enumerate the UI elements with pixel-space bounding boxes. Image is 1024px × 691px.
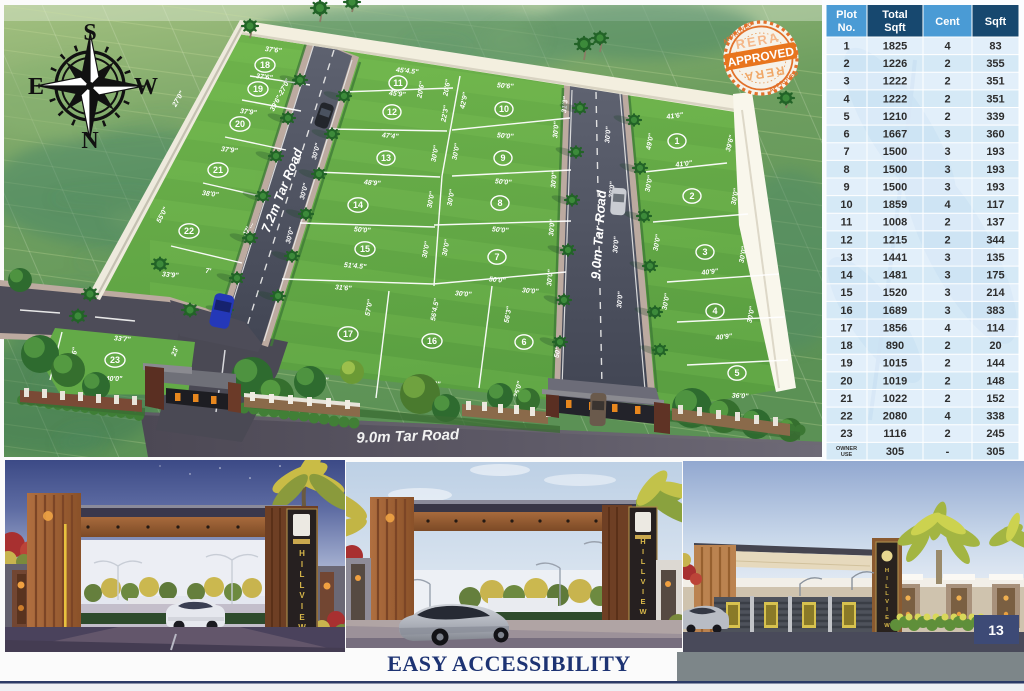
svg-text:I: I bbox=[301, 560, 303, 569]
svg-text:11: 11 bbox=[841, 217, 853, 229]
svg-text:1667: 1667 bbox=[883, 129, 907, 141]
svg-text:Sqft: Sqft bbox=[985, 16, 1007, 28]
svg-text:18: 18 bbox=[260, 60, 270, 70]
svg-text:1210: 1210 bbox=[883, 111, 907, 123]
svg-text:1015: 1015 bbox=[883, 358, 907, 370]
svg-text:H: H bbox=[885, 568, 889, 574]
svg-text:19: 19 bbox=[253, 84, 263, 94]
svg-text:1008: 1008 bbox=[883, 217, 907, 229]
svg-text:1441: 1441 bbox=[883, 252, 907, 264]
svg-text:245: 245 bbox=[986, 428, 1004, 440]
svg-text:305: 305 bbox=[986, 446, 1004, 458]
svg-text:7: 7 bbox=[494, 252, 499, 262]
svg-text:14: 14 bbox=[840, 270, 853, 282]
svg-text:4: 4 bbox=[944, 322, 951, 334]
svg-text:4: 4 bbox=[944, 199, 951, 211]
svg-text:Total: Total bbox=[882, 9, 907, 21]
svg-text:7': 7' bbox=[205, 268, 211, 275]
svg-text:1856: 1856 bbox=[883, 322, 907, 334]
svg-text:12: 12 bbox=[840, 234, 852, 246]
svg-text:N: N bbox=[81, 128, 99, 154]
svg-text:1226: 1226 bbox=[883, 58, 907, 70]
svg-text:1689: 1689 bbox=[883, 305, 907, 317]
svg-text:144: 144 bbox=[986, 358, 1005, 370]
svg-text:2: 2 bbox=[843, 58, 849, 70]
svg-text:305: 305 bbox=[886, 446, 904, 458]
svg-text:351: 351 bbox=[986, 76, 1004, 88]
svg-text:13: 13 bbox=[840, 252, 852, 264]
svg-text:1500: 1500 bbox=[883, 146, 907, 158]
svg-text:15: 15 bbox=[360, 244, 370, 254]
svg-text:L: L bbox=[885, 584, 889, 590]
svg-text:3: 3 bbox=[944, 146, 950, 158]
svg-text:22: 22 bbox=[840, 411, 852, 423]
svg-text:360: 360 bbox=[986, 129, 1004, 141]
svg-text:1222: 1222 bbox=[883, 76, 907, 88]
svg-text:351: 351 bbox=[986, 93, 1004, 105]
svg-text:21: 21 bbox=[840, 393, 852, 405]
svg-text:1022: 1022 bbox=[883, 393, 907, 405]
svg-text:I: I bbox=[642, 587, 644, 596]
svg-text:2: 2 bbox=[944, 340, 950, 352]
svg-text:W: W bbox=[134, 74, 158, 100]
svg-text:383: 383 bbox=[986, 305, 1004, 317]
svg-text:2: 2 bbox=[944, 58, 950, 70]
svg-text:7: 7 bbox=[843, 146, 849, 158]
svg-text:3: 3 bbox=[944, 164, 950, 176]
svg-text:6: 6 bbox=[521, 337, 526, 347]
svg-text:1520: 1520 bbox=[883, 287, 907, 299]
svg-text:EASY ACCESSIBILITY: EASY ACCESSIBILITY bbox=[387, 651, 631, 676]
svg-text:3: 3 bbox=[944, 305, 950, 317]
svg-text:8: 8 bbox=[843, 164, 849, 176]
svg-text:193: 193 bbox=[986, 164, 1004, 176]
svg-text:4: 4 bbox=[944, 40, 951, 52]
svg-text:23: 23 bbox=[110, 355, 120, 365]
svg-text:5: 5 bbox=[734, 368, 739, 378]
svg-text:36'0": 36'0" bbox=[732, 393, 750, 401]
svg-text:2: 2 bbox=[944, 217, 950, 229]
svg-text:3: 3 bbox=[944, 270, 950, 282]
svg-text:3: 3 bbox=[843, 76, 849, 88]
svg-text:USE: USE bbox=[841, 452, 853, 458]
svg-text:13: 13 bbox=[988, 622, 1004, 638]
svg-text:3: 3 bbox=[944, 287, 950, 299]
svg-text:10: 10 bbox=[499, 104, 509, 114]
svg-text:22: 22 bbox=[184, 226, 194, 236]
svg-text:2: 2 bbox=[944, 393, 950, 405]
svg-text:I: I bbox=[301, 602, 303, 611]
svg-text:14: 14 bbox=[353, 200, 363, 210]
svg-text:L: L bbox=[300, 570, 305, 579]
svg-text:338: 338 bbox=[986, 411, 1004, 423]
svg-text:23: 23 bbox=[840, 428, 852, 440]
svg-text:9: 9 bbox=[843, 181, 849, 193]
svg-text:152: 152 bbox=[986, 393, 1004, 405]
svg-text:17: 17 bbox=[343, 329, 353, 339]
svg-text:1222: 1222 bbox=[883, 93, 907, 105]
svg-text:2: 2 bbox=[944, 375, 950, 387]
svg-text:1859: 1859 bbox=[883, 199, 907, 211]
svg-text:4: 4 bbox=[843, 93, 850, 105]
svg-text:214: 214 bbox=[986, 287, 1005, 299]
svg-text:20: 20 bbox=[989, 340, 1001, 352]
svg-text:2: 2 bbox=[689, 191, 694, 201]
svg-text:890: 890 bbox=[886, 340, 904, 352]
svg-text:175: 175 bbox=[986, 270, 1004, 282]
svg-text:16: 16 bbox=[840, 305, 852, 317]
svg-text:2: 2 bbox=[944, 76, 950, 88]
svg-text:H: H bbox=[640, 537, 645, 546]
svg-text:193: 193 bbox=[986, 146, 1004, 158]
svg-text:4: 4 bbox=[712, 306, 717, 316]
svg-text:Sqft: Sqft bbox=[884, 22, 906, 34]
svg-text:20: 20 bbox=[840, 375, 852, 387]
svg-text:19: 19 bbox=[840, 358, 852, 370]
svg-text:E: E bbox=[885, 615, 889, 621]
svg-text:V: V bbox=[299, 591, 305, 600]
svg-text:148: 148 bbox=[986, 375, 1004, 387]
svg-text:1215: 1215 bbox=[883, 234, 907, 246]
svg-text:15: 15 bbox=[840, 287, 852, 299]
svg-text:17: 17 bbox=[840, 322, 852, 334]
svg-text:18: 18 bbox=[840, 340, 852, 352]
svg-text:117: 117 bbox=[987, 199, 1005, 211]
svg-text:2: 2 bbox=[944, 428, 950, 440]
svg-text:137: 137 bbox=[986, 217, 1004, 229]
svg-text:20: 20 bbox=[235, 119, 245, 129]
svg-text:135: 135 bbox=[986, 252, 1004, 264]
svg-text:3: 3 bbox=[944, 129, 950, 141]
svg-text:9.0m Tar Road: 9.0m Tar Road bbox=[356, 426, 460, 447]
svg-text:L: L bbox=[641, 557, 646, 566]
svg-text:E: E bbox=[299, 613, 305, 622]
svg-text:I: I bbox=[642, 547, 644, 556]
svg-text:344: 344 bbox=[986, 234, 1005, 246]
svg-text:16: 16 bbox=[427, 336, 437, 346]
svg-text:Plot: Plot bbox=[836, 9, 857, 21]
svg-text:11: 11 bbox=[393, 78, 403, 88]
svg-text:V: V bbox=[640, 577, 645, 586]
svg-text:E: E bbox=[640, 597, 645, 606]
svg-text:-: - bbox=[946, 446, 950, 458]
svg-text:2: 2 bbox=[944, 234, 950, 246]
svg-text:1481: 1481 bbox=[883, 270, 907, 282]
svg-text:21: 21 bbox=[213, 165, 223, 175]
svg-text:10: 10 bbox=[840, 199, 852, 211]
svg-text:1500: 1500 bbox=[883, 181, 907, 193]
svg-text:1: 1 bbox=[674, 136, 679, 146]
svg-text:339: 339 bbox=[986, 111, 1004, 123]
svg-text:L: L bbox=[641, 567, 646, 576]
svg-text:Cent: Cent bbox=[935, 16, 960, 28]
svg-text:1019: 1019 bbox=[883, 375, 907, 387]
svg-text:2: 2 bbox=[944, 111, 950, 123]
svg-text:V: V bbox=[885, 599, 889, 605]
svg-text:193: 193 bbox=[986, 181, 1004, 193]
svg-text:3: 3 bbox=[944, 181, 950, 193]
svg-text:83: 83 bbox=[989, 40, 1001, 52]
svg-text:8: 8 bbox=[497, 198, 502, 208]
svg-text:3: 3 bbox=[702, 247, 707, 257]
svg-text:5: 5 bbox=[843, 111, 849, 123]
svg-text:4: 4 bbox=[944, 411, 951, 423]
svg-text:12: 12 bbox=[387, 107, 397, 117]
svg-text:2: 2 bbox=[944, 358, 950, 370]
svg-text:No.: No. bbox=[838, 22, 856, 34]
svg-text:2080: 2080 bbox=[883, 411, 907, 423]
svg-text:13: 13 bbox=[381, 153, 391, 163]
svg-text:H: H bbox=[299, 549, 305, 558]
svg-text:L: L bbox=[885, 591, 889, 597]
svg-text:1: 1 bbox=[843, 40, 849, 52]
svg-text:2: 2 bbox=[944, 93, 950, 105]
svg-text:1825: 1825 bbox=[883, 40, 907, 52]
svg-text:355: 355 bbox=[986, 58, 1004, 70]
svg-text:9: 9 bbox=[500, 153, 505, 163]
svg-text:6: 6 bbox=[843, 129, 849, 141]
svg-text:3: 3 bbox=[944, 252, 950, 264]
svg-text:114: 114 bbox=[987, 322, 1006, 334]
svg-text:W: W bbox=[639, 607, 647, 616]
svg-text:L: L bbox=[300, 581, 305, 590]
svg-text:W: W bbox=[884, 623, 890, 629]
svg-text:S: S bbox=[83, 20, 96, 46]
svg-text:1500: 1500 bbox=[883, 164, 907, 176]
svg-text:E: E bbox=[28, 74, 44, 100]
svg-text:1116: 1116 bbox=[883, 428, 906, 440]
